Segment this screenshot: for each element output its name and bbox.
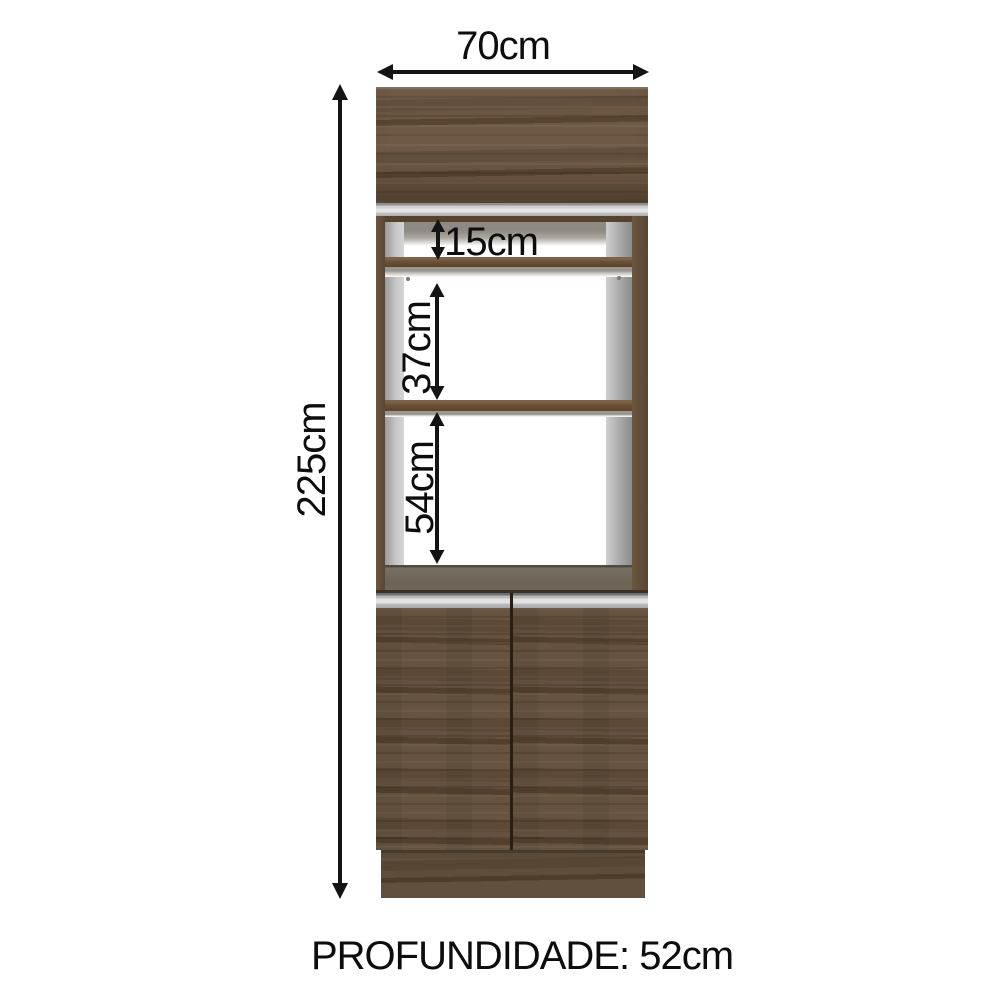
niche-floor bbox=[385, 565, 632, 590]
shelf-2-underside bbox=[385, 411, 632, 417]
depth-caption: PROFUNDIDADE: 52cm bbox=[311, 936, 733, 976]
right-door-handle-profile bbox=[513, 593, 648, 608]
bottom-niche-dimension-label: 54cm bbox=[400, 441, 440, 535]
left-side-panel-edge bbox=[376, 216, 385, 590]
right-side-panel-edge bbox=[632, 216, 648, 590]
bottom-door-right bbox=[513, 608, 648, 850]
shelf-pin-hole-right bbox=[617, 276, 621, 280]
shelf-pin-hole-left bbox=[406, 277, 410, 281]
carcass-top-band bbox=[376, 203, 648, 216]
width-dimension-label: 70cm bbox=[456, 26, 550, 66]
top-door bbox=[376, 87, 648, 203]
top-niche-dimension-label: 15cm bbox=[444, 222, 538, 262]
bottom-door-section bbox=[376, 590, 648, 850]
product-dimension-diagram: 70cm 225cm 15cm 37cm 54cm PROFUNDIDADE: … bbox=[0, 0, 1000, 1000]
height-dimension-label: 225cm bbox=[292, 402, 332, 517]
shelf-1-underside bbox=[385, 267, 632, 277]
shelf-2 bbox=[385, 400, 632, 411]
cabinet-illustration bbox=[0, 0, 1000, 1000]
bottom-door-left bbox=[376, 608, 510, 850]
left-door-handle-profile bbox=[376, 593, 510, 608]
door-gap-line bbox=[510, 593, 513, 850]
plinth-base bbox=[381, 850, 645, 898]
middle-niche-dimension-label: 37cm bbox=[397, 301, 437, 395]
